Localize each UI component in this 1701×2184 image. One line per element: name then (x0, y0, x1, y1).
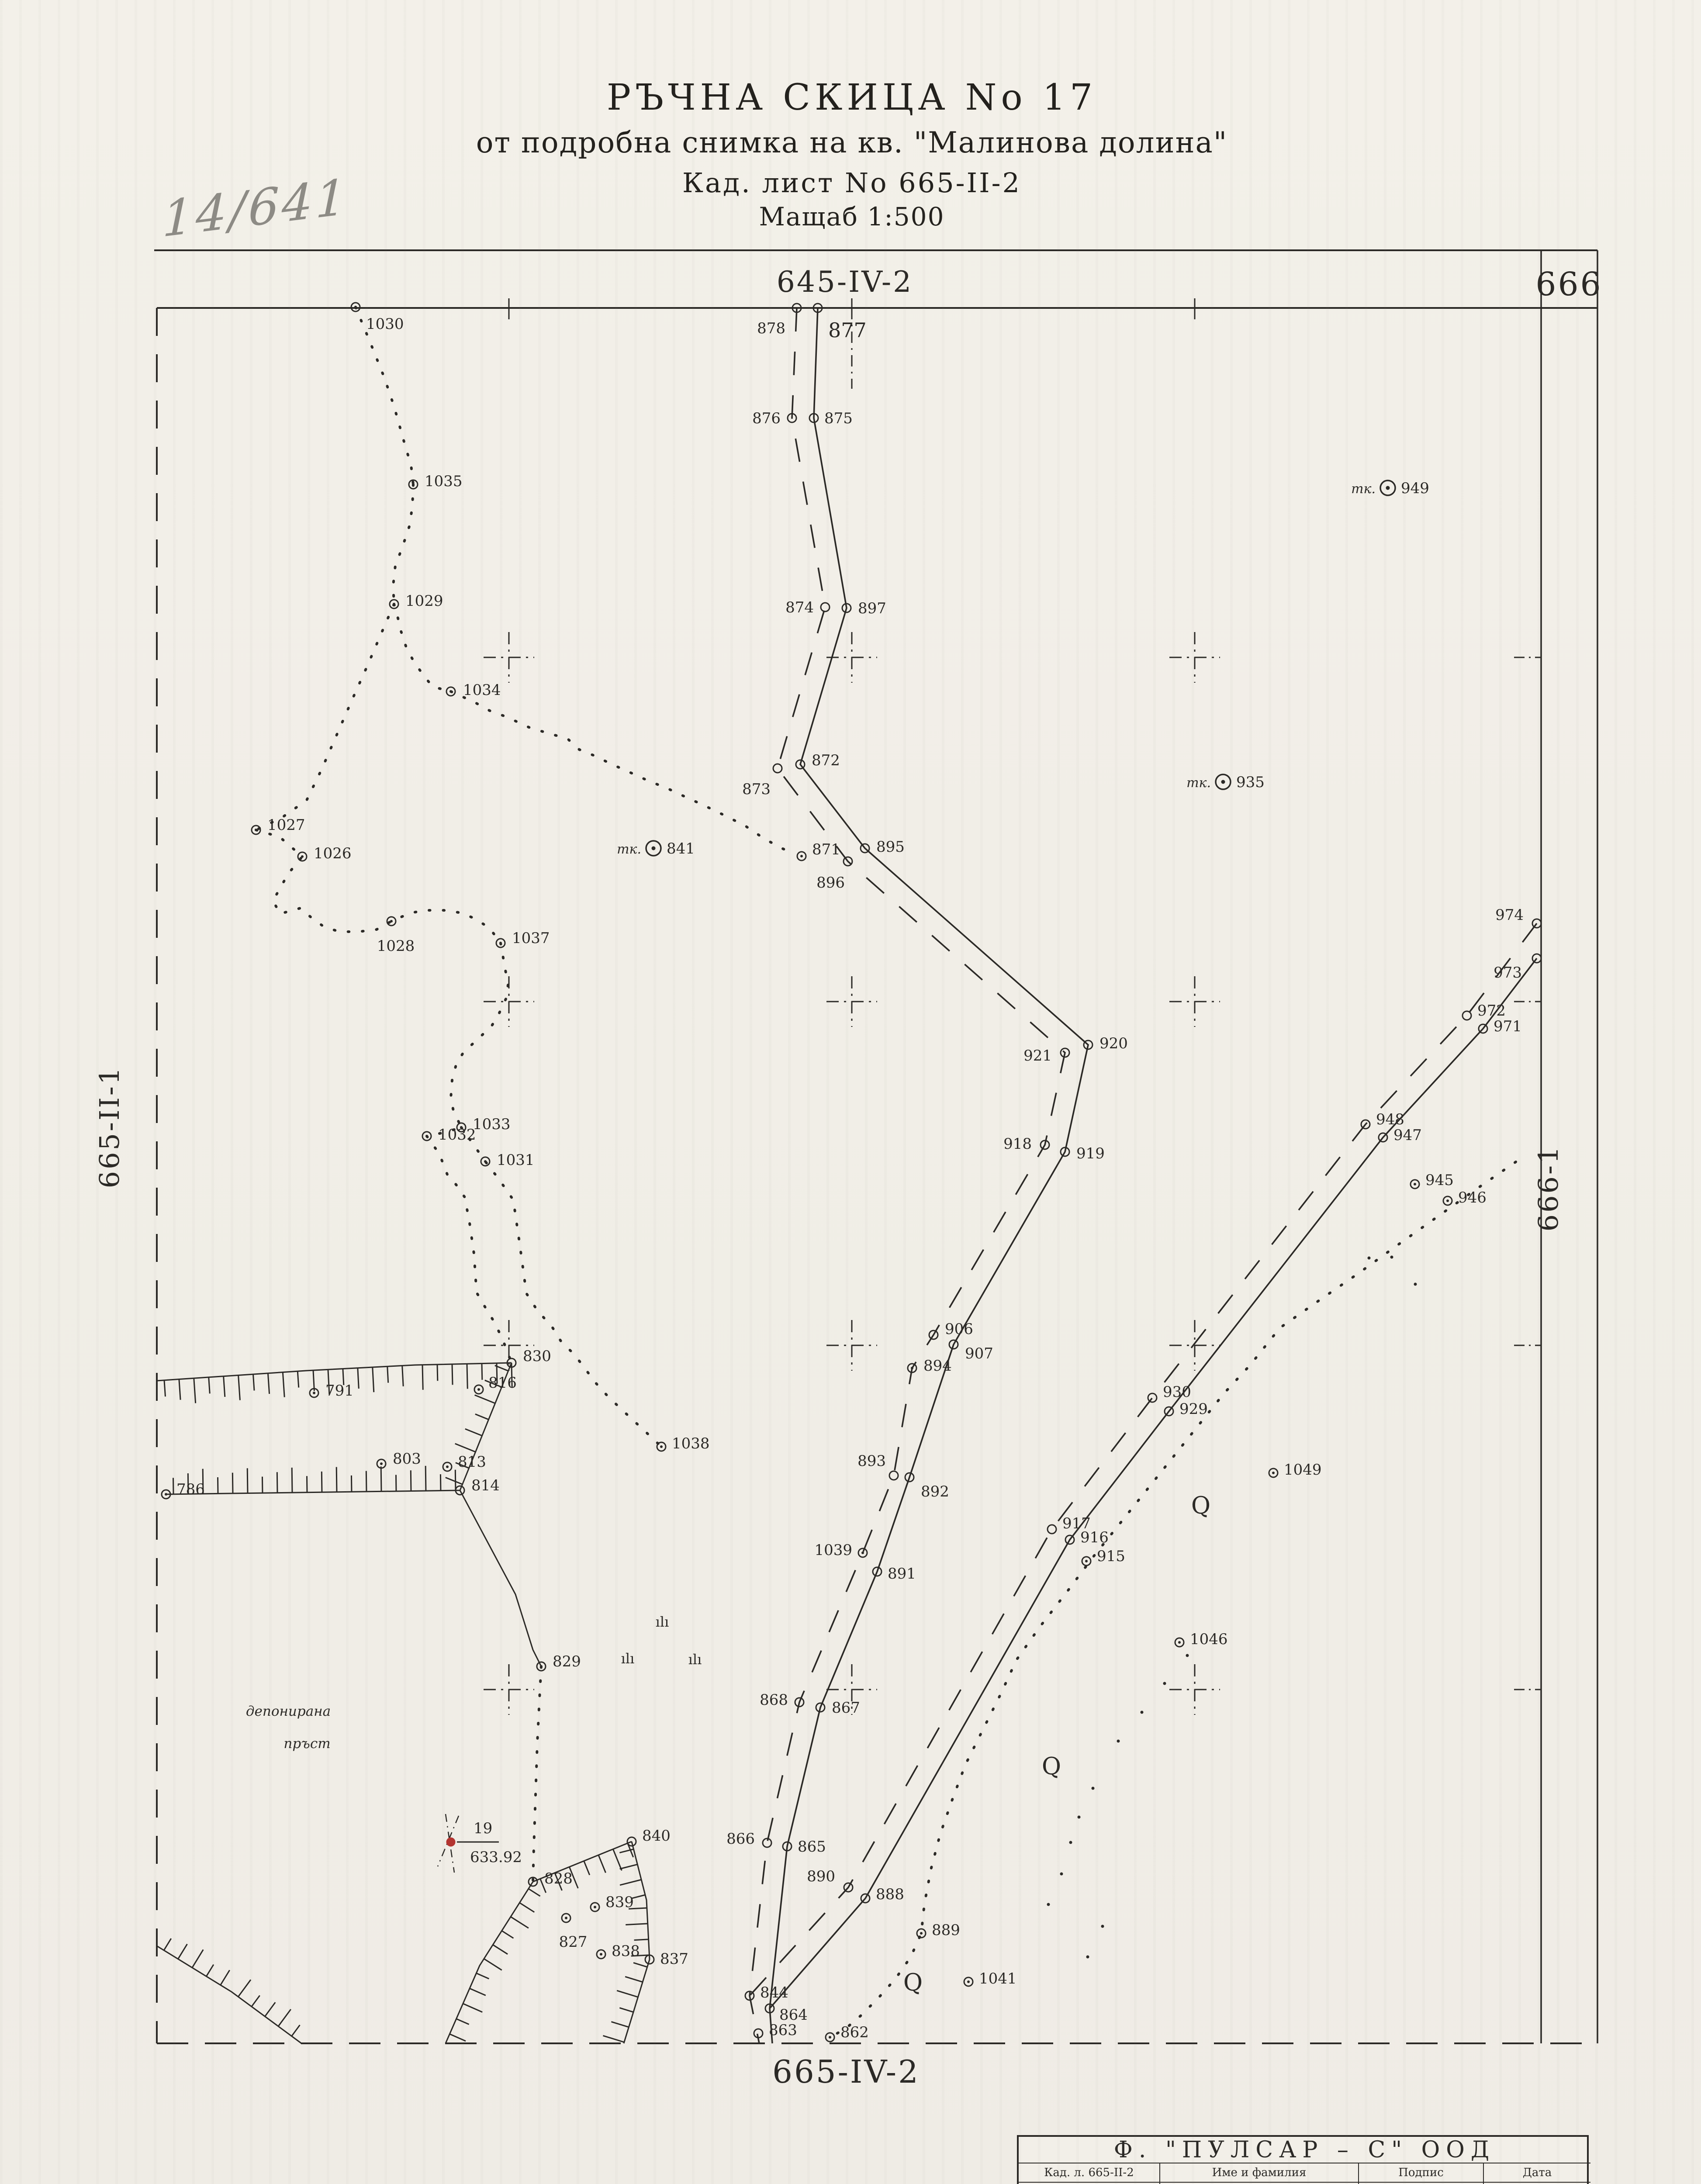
point-label-892: 892 (921, 1483, 949, 1500)
point-dot (1414, 1183, 1416, 1185)
frame-sheet-labels: 645-IV-2666665-IV-2665-II-1666-1 (93, 265, 1603, 2090)
hatch-tick (519, 1903, 534, 1912)
map-text-6: ılı (621, 1650, 635, 1667)
point-label-841: 841 (667, 840, 695, 857)
map-text-0: депонирана (246, 1704, 331, 1719)
hatch-tick (470, 1988, 486, 1995)
col-header-sheet: Кад. л. 665-II-2 (1019, 2163, 1160, 2183)
scatter-dot (1060, 1873, 1063, 1876)
point-1035: 1035 (409, 473, 463, 490)
hatch-tick (265, 2002, 275, 2016)
point-974: 974 (1495, 906, 1541, 928)
chain-1033-1038 (461, 1127, 661, 1447)
point-label-877: 877 (828, 318, 867, 342)
dotted-chains (256, 307, 1516, 2037)
point-1039: 1039 (814, 1541, 867, 1559)
hatch-tick (467, 1364, 467, 1389)
point-label-871: 871 (812, 841, 840, 858)
point-1038: 1038 (657, 1435, 710, 1452)
point-948: 948 (1361, 1111, 1404, 1129)
point-dot (600, 1953, 602, 1956)
point-label-896: 896 (816, 874, 845, 892)
point-915: 915 (1082, 1548, 1125, 1565)
hatch-tick (437, 1365, 438, 1381)
point-893: 893 (857, 1452, 898, 1480)
hatch-tick (322, 1472, 322, 1492)
point-dot (412, 483, 415, 486)
point-label-895: 895 (876, 838, 905, 856)
map-canvas: 645-IV-2666665-IV-2665-II-1666-187887787… (0, 0, 1701, 2184)
hatch-tick (484, 1959, 502, 1970)
hatch-tick (446, 1477, 463, 1484)
point-919: 919 (1061, 1145, 1105, 1162)
sheet-label-right: 666-1 (1532, 1145, 1564, 1232)
point-label-838: 838 (612, 1942, 640, 1960)
point-label-814: 814 (471, 1477, 500, 1494)
scatter-dots (1047, 1256, 1417, 1959)
point-label-891: 891 (888, 1565, 916, 1583)
point-circle (1462, 1011, 1471, 1020)
hatch-tick (611, 2022, 629, 2027)
chain-1027-1037 (256, 830, 501, 943)
scatter-dot (1117, 1740, 1120, 1743)
point-dot (425, 1135, 428, 1137)
point-label-1034: 1034 (463, 681, 501, 699)
point-label-1041: 1041 (979, 1970, 1017, 1987)
hatch-tick (307, 1476, 307, 1492)
hatch-tick (396, 1475, 396, 1491)
point-888: 888 (861, 1886, 904, 1903)
point-label-918: 918 (1003, 1135, 1032, 1153)
point-label-873: 873 (742, 781, 771, 798)
point-1049: 1049 (1269, 1461, 1322, 1479)
point-892: 892 (905, 1473, 949, 1500)
point-label-1029: 1029 (405, 592, 443, 610)
red-station-dot (446, 1838, 455, 1846)
hatch-tick (411, 1470, 411, 1491)
point-841: тк.841 (617, 840, 695, 857)
triangulation-point-19: 19633.92 (438, 1814, 522, 1873)
point-label-1027: 1027 (267, 816, 305, 834)
wedge-east (632, 1842, 650, 1959)
point-dot (594, 1906, 596, 1908)
point-dot (380, 1462, 383, 1465)
hatch-tick (603, 2035, 624, 2042)
point-label-949: 949 (1401, 480, 1429, 497)
point-label-829: 829 (553, 1653, 581, 1670)
scatter-dot (1069, 1841, 1072, 1844)
point-label-1038: 1038 (672, 1435, 710, 1452)
point-label-1028: 1028 (377, 937, 415, 955)
scatter-dot (1101, 1925, 1104, 1928)
point-dot (255, 829, 257, 831)
hatch-tick (381, 1466, 381, 1491)
point-label-1046: 1046 (1190, 1631, 1228, 1648)
road-a-solid (770, 308, 1088, 2043)
point-dot (1272, 1472, 1275, 1474)
point-label-868: 868 (760, 1691, 788, 1709)
point-label-830: 830 (523, 1348, 551, 1365)
hatch-tick (179, 1379, 180, 1400)
chain-1032-830 (427, 1136, 512, 1363)
point-label-920: 920 (1099, 1035, 1128, 1052)
survey-points: 8788778768758748978728738718958969209219… (162, 303, 1541, 2042)
point-dot (499, 942, 502, 944)
hatch-tick (209, 1377, 210, 1393)
point-875: 875 (809, 410, 853, 427)
chain-1035-1029 (393, 484, 413, 604)
point-dot (301, 855, 304, 858)
sheet-label-left: 665-II-1 (93, 1066, 125, 1189)
point-label-872: 872 (812, 752, 840, 769)
point-dot (800, 855, 803, 857)
point-label-1030: 1030 (366, 315, 404, 333)
point-dot (484, 1160, 487, 1163)
point-label-844: 844 (760, 1984, 788, 2001)
point-897: 897 (842, 600, 886, 617)
hatch-tick (425, 1466, 426, 1491)
hatch-tick (617, 1990, 638, 1997)
hatch-tick (336, 1467, 337, 1492)
hatch-tick (283, 1372, 284, 1397)
point-label-786: 786 (176, 1481, 205, 1498)
hatch-tick (633, 1963, 647, 1967)
hatch-tick (277, 1472, 277, 1493)
point-label-1031: 1031 (497, 1151, 535, 1169)
point-863: 863 (754, 2022, 797, 2039)
point-1026: 1026 (298, 845, 352, 862)
hatch-tick (449, 2034, 466, 2041)
point-label-803: 803 (393, 1450, 421, 1468)
corner-bank (157, 1946, 301, 2043)
hatch-tick (218, 1477, 218, 1493)
point-label-890: 890 (807, 1868, 835, 1885)
hatch-tick (221, 1970, 230, 1985)
point-dot (967, 1980, 970, 1983)
hatch-tick (164, 1380, 166, 1396)
col-header-name: Име и фамилия (1160, 2163, 1359, 2183)
tk-point-dot (652, 847, 656, 850)
point-label-915: 915 (1097, 1548, 1125, 1565)
point-label-813: 813 (458, 1453, 486, 1471)
point-844: 844 (745, 1984, 788, 2001)
point-label-919: 919 (1076, 1145, 1105, 1162)
hatch-tick (626, 1924, 648, 1925)
map-annotations: депониранапръстQQQılıılıılı (246, 1492, 1210, 1996)
point-label-948: 948 (1376, 1111, 1404, 1128)
tk-point-dot (1386, 486, 1390, 490)
hatch-tick (224, 1376, 225, 1397)
point-label-906: 906 (945, 1320, 973, 1338)
point-949: тк.949 (1351, 480, 1429, 497)
point-876: 876 (752, 410, 796, 427)
point-920: 920 (1084, 1035, 1128, 1052)
point-945: 945 (1411, 1171, 1454, 1189)
point-dot (565, 1917, 567, 1919)
sheet-label-top: 645-IV-2 (777, 265, 913, 299)
point-label-1039: 1039 (814, 1541, 852, 1559)
hatch-tick (402, 1366, 403, 1386)
map-text-7: ılı (688, 1651, 702, 1668)
point-label-1033: 1033 (473, 1116, 511, 1133)
point-786: 786 (162, 1481, 205, 1499)
hatch-tick (493, 1945, 508, 1954)
point-label-916: 916 (1080, 1529, 1109, 1546)
point-circle (821, 603, 830, 612)
hatch-tick (373, 1367, 374, 1392)
hatch-tick (351, 1476, 352, 1492)
tk-point-dot (1221, 780, 1225, 784)
point-label-946: 946 (1458, 1189, 1487, 1206)
point-label-828: 828 (544, 1870, 573, 1887)
hatch-tick (206, 1965, 214, 1977)
station-elevation: 633.92 (470, 1849, 522, 1866)
hatch-tick (252, 1995, 260, 2006)
chain-1030-1035 (356, 307, 413, 484)
hatch-tick (164, 1939, 171, 1950)
point-dot (911, 1367, 913, 1369)
point-837: 837 (645, 1950, 688, 1968)
hatch-tick (482, 1364, 482, 1380)
hatch-tick (619, 2008, 633, 2012)
point-1027: 1027 (252, 816, 305, 834)
point-label-935: 935 (1236, 774, 1265, 791)
hatch-tick (278, 2009, 291, 2026)
point-dot (449, 690, 452, 693)
point-838: 838 (597, 1942, 640, 1960)
firm-title: Ф. "ПУЛСАР – С" ООД (1019, 2137, 1590, 2163)
map-text-2: Q (1191, 1492, 1210, 1519)
hatch-tick (253, 1374, 254, 1390)
point-830: 830 (507, 1348, 551, 1367)
point-label-840: 840 (642, 1827, 671, 1845)
col-header-date: Дата (1484, 2163, 1590, 2183)
point-816: 816 (474, 1374, 517, 1394)
scatter-dot (1390, 1256, 1393, 1259)
point-dot (861, 1552, 864, 1554)
point-circle (1048, 1525, 1056, 1534)
point-840: 840 (627, 1827, 671, 1846)
hatch-tick (529, 1889, 540, 1896)
point-dot (920, 1932, 923, 1935)
hatch-tick (313, 1370, 314, 1391)
signature-table: Ф. "ПУЛСАР – С" ООД Кад. л. 665-II-2 Име… (1017, 2135, 1589, 2184)
map-frame (154, 250, 1597, 2043)
point-871: 871 (797, 841, 840, 860)
hatch-tick (455, 1444, 476, 1452)
hatch-tick (620, 1880, 641, 1885)
hatch-tick (178, 1944, 187, 1959)
point-label-876: 876 (752, 410, 781, 427)
hatch-tick (465, 1429, 482, 1436)
hatch-tick (422, 1365, 423, 1390)
point-1041: 1041 (964, 1970, 1017, 1987)
point-813: 813 (443, 1453, 486, 1471)
scatter-dot (1078, 1816, 1081, 1819)
hatch-tick (387, 1366, 388, 1382)
point-dot (354, 306, 357, 308)
point-label-1049: 1049 (1284, 1461, 1322, 1479)
scatter-dot (1186, 1654, 1189, 1657)
boundary-lines (157, 308, 1537, 2043)
point-973: 973 (1494, 954, 1541, 981)
point-label-929: 929 (1179, 1400, 1208, 1418)
hatch-tick (475, 1414, 489, 1419)
chain-right (830, 1162, 1516, 2037)
point-label-1037: 1037 (512, 930, 550, 947)
scatter-dot (1047, 1903, 1050, 1906)
point-label-862: 862 (840, 2024, 869, 2041)
point-dot (393, 603, 395, 605)
point-1032: 1032 (422, 1126, 476, 1144)
hatch-tick (366, 1471, 366, 1492)
point-label-947: 947 (1393, 1127, 1422, 1144)
point-label-971: 971 (1494, 1018, 1522, 1035)
scatter-dot (1092, 1787, 1095, 1790)
point-dot (390, 920, 393, 923)
point-1034: 1034 (446, 681, 501, 699)
chain-829-828 (533, 1666, 541, 1882)
road-b-solid (770, 958, 1537, 2008)
point-label-839: 839 (605, 1894, 634, 1911)
hatch-tick (456, 2019, 469, 2025)
map-text-5: ılı (656, 1614, 669, 1630)
hatch-tick (232, 1473, 233, 1493)
point-label-907: 907 (965, 1345, 993, 1362)
point-873: 873 (742, 764, 782, 798)
hatch-tick (634, 1939, 649, 1940)
hatch-tick (625, 1977, 643, 1982)
hatch-tick (475, 1395, 495, 1403)
chain-1029-1027 (256, 604, 394, 830)
point-1028: 1028 (377, 917, 415, 955)
hatch-tick (358, 1368, 359, 1389)
point-label-867: 867 (832, 1699, 860, 1717)
point-dot (829, 2036, 831, 2039)
scatter-dot (1086, 1956, 1089, 1959)
point-label-878: 878 (757, 320, 785, 337)
hatch-tick (502, 1931, 514, 1938)
point-791: 791 (310, 1382, 354, 1400)
point-1029: 1029 (390, 592, 443, 610)
point-label-945: 945 (1425, 1171, 1454, 1189)
point-label-894: 894 (923, 1357, 952, 1375)
hatch-tick (455, 1470, 456, 1490)
tk-prefix-label: тк. (1186, 775, 1211, 791)
point-877: 877 (813, 304, 867, 342)
point-label-1032: 1032 (438, 1126, 476, 1144)
point-868: 868 (760, 1691, 804, 1709)
point-862: 862 (826, 2024, 869, 2042)
point-828: 828 (529, 1870, 573, 1887)
point-1037: 1037 (496, 930, 550, 947)
point-label-863: 863 (769, 2022, 797, 2039)
point-803: 803 (377, 1450, 421, 1468)
sheet-label-top_right: 666 (1535, 266, 1602, 303)
point-label-791: 791 (325, 1382, 354, 1400)
hatch-tick (292, 2025, 300, 2036)
hatch-tick (292, 1468, 292, 1493)
point-1031: 1031 (481, 1151, 535, 1169)
hatch-tick (452, 1364, 453, 1385)
station-number: 19 (474, 1820, 492, 1837)
point-label-866: 866 (726, 1830, 755, 1848)
point-label-889: 889 (932, 1921, 960, 1939)
point-1046: 1046 (1175, 1631, 1228, 1648)
sheet-label-bottom: 665-IV-2 (772, 2053, 920, 2090)
row1-name: Б. Макариев (1163, 2182, 1262, 2184)
hatch-tick (463, 2004, 482, 2012)
col-header-signature: Подпис (1359, 2163, 1484, 2183)
point-label-816: 816 (488, 1374, 517, 1392)
chain-1029-1034 (394, 604, 451, 691)
point-dot (1446, 1199, 1449, 1202)
point-866: 866 (726, 1830, 771, 1848)
scatter-dot (1368, 1257, 1371, 1260)
point-dot (477, 1388, 480, 1391)
hatch-tick (262, 1477, 263, 1493)
point-dot (446, 1465, 449, 1468)
tk-prefix-label: тк. (1351, 481, 1376, 497)
point-839: 839 (591, 1894, 634, 1911)
point-label-973: 973 (1494, 964, 1522, 981)
hatch-tick (173, 1478, 173, 1494)
point-930: 930 (1148, 1383, 1191, 1402)
point-dot (1178, 1641, 1181, 1644)
point-circle (773, 764, 782, 773)
scatter-dot (1163, 1682, 1166, 1685)
hatch-tick (598, 1855, 605, 1873)
point-label-864: 864 (779, 2006, 808, 2024)
tk-prefix-label: тк. (617, 842, 641, 857)
hatch-tick (476, 1973, 489, 1979)
chain-1034-871 (451, 691, 793, 853)
strip2-top (166, 1490, 460, 1494)
scatter-dot (1141, 1711, 1144, 1714)
point-label-1026: 1026 (314, 845, 352, 862)
hatch-tick (440, 1474, 441, 1490)
point-890: 890 (807, 1868, 853, 1892)
point-dot (660, 1445, 663, 1448)
point-label-874: 874 (785, 599, 814, 616)
hatch-tick (620, 1864, 638, 1869)
map-text-1: пръст (283, 1736, 330, 1752)
point-935: тк.935 (1186, 774, 1265, 791)
point-label-827: 827 (559, 1933, 588, 1951)
point-label-974: 974 (1495, 906, 1524, 924)
point-946: 946 (1443, 1189, 1487, 1206)
point-label-837: 837 (660, 1950, 688, 1968)
point-827: 827 (559, 1914, 588, 1951)
hatch-tick (192, 1949, 203, 1967)
point-label-875: 875 (824, 410, 853, 427)
point-label-930: 930 (1163, 1383, 1191, 1401)
point-829: 829 (537, 1653, 581, 1671)
strip1-top (157, 1363, 512, 1381)
point-891: 891 (873, 1565, 916, 1583)
point-label-921: 921 (1023, 1047, 1052, 1064)
hatch-tick (247, 1468, 248, 1493)
point-label-1035: 1035 (425, 473, 463, 490)
hatch-tick (239, 1375, 240, 1400)
scatter-dot (1414, 1283, 1417, 1286)
ditch-boundary (460, 1363, 541, 1666)
point-circle (1148, 1393, 1157, 1402)
point-label-893: 893 (857, 1452, 886, 1470)
chain-1037-1032 (427, 943, 508, 1136)
wedge-south (624, 1959, 650, 2043)
hatch-tick (297, 1371, 299, 1387)
